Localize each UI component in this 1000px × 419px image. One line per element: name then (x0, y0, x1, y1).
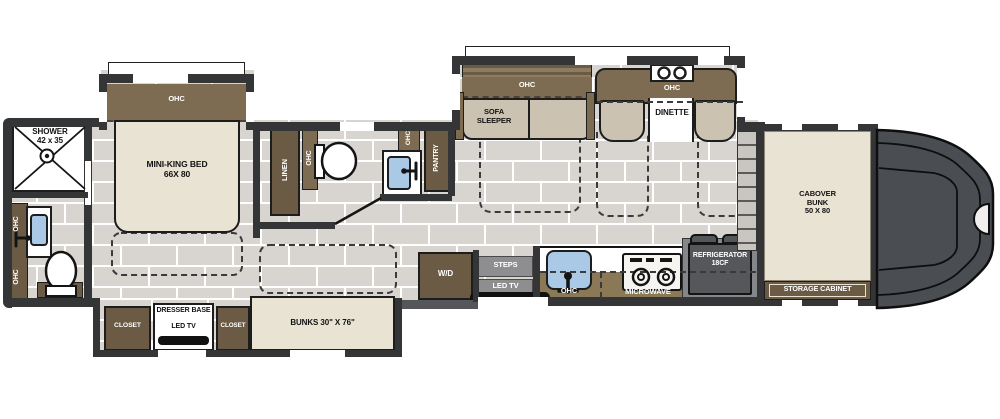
bed-label: MINI-KING BED 66X 80 (114, 160, 240, 180)
faucet-mid (401, 163, 416, 179)
pantry-label: PANTRY (431, 128, 443, 188)
bath-ohc-label-1: OHC (11, 206, 23, 242)
closet-right-label: CLOSET (213, 322, 253, 329)
bunks-label: BUNKS 30" X 76" (250, 318, 395, 327)
dresser-ledtv-label: LED TV (153, 323, 214, 331)
shower-label: SHOWER 42 x 35 (12, 127, 88, 145)
entry-ledtv-label: LED TV (478, 282, 533, 291)
dinette-label: DINETTE (640, 108, 704, 117)
toilet-rear (46, 252, 76, 296)
rv-floorplan: SHOWER 42 x 35 OHC OHC OHC MINI-KING BED… (0, 0, 1000, 419)
dinette-cupholders (659, 68, 686, 79)
bath-ohc-label-2: OHC (11, 259, 23, 295)
bath-door (335, 198, 381, 224)
dresser-label: DRESSER BASE (153, 307, 214, 315)
sink-ohc-label: OHC (403, 123, 415, 153)
steps-label: STEPS (478, 261, 533, 270)
kitchen-ohc-label: OHC (546, 287, 592, 296)
microwave-label: MICROWAVE (608, 288, 688, 297)
refrigerator-label: REFRIGERATOR 18CF (686, 252, 754, 268)
toilet-mid (315, 143, 356, 179)
wd-label: W/D (418, 269, 473, 278)
truck-cab (877, 130, 993, 308)
midbath-ohc-label: OHC (304, 136, 316, 180)
sofa-ohc-label: OHC (462, 81, 592, 90)
cabover-label: CABOVER BUNK 50 X 80 (764, 190, 871, 216)
dinette-ohc-label: OHC (648, 84, 696, 93)
sofa-label: SOFA SLEEPER (466, 108, 522, 125)
storage-cabinet-label: STORAGE CABINET (764, 285, 871, 293)
bedroom-ohc-label: OHC (107, 95, 246, 104)
closet-left-label: CLOSET (104, 322, 151, 330)
linen-label: LINEN (278, 130, 292, 210)
